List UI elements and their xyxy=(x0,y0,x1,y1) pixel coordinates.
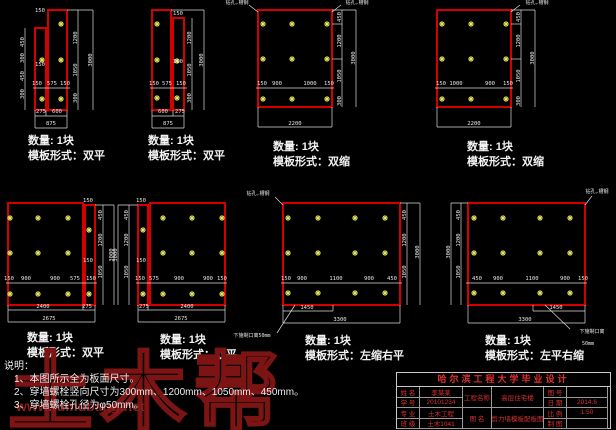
tb-value-drafter xyxy=(567,419,608,430)
bolt-icon xyxy=(315,290,321,296)
bolt-icon xyxy=(503,56,509,62)
dim-text: 450 xyxy=(516,12,522,22)
tb-value-major: 土木工程 xyxy=(420,408,463,419)
bolt-icon xyxy=(285,290,291,296)
panel-form-label: 模板形式：双缩 xyxy=(273,154,350,168)
bolt-icon xyxy=(285,250,291,256)
dim-text: 1200 xyxy=(124,233,130,246)
panel-qty-label: 数量: 1块 xyxy=(160,332,207,346)
dim-text: 钻孔,槽钢 xyxy=(585,188,608,195)
dim-text: 钻孔,槽钢 xyxy=(225,0,248,6)
dim-text: 1050 xyxy=(456,265,462,278)
dim-text: 450 xyxy=(402,210,408,220)
tb-value-class: 土木1041 xyxy=(420,419,463,430)
dim-text: 275 xyxy=(175,109,185,115)
dim-text: 450 xyxy=(124,210,130,220)
bolt-icon xyxy=(174,95,180,101)
dim-text: 300 xyxy=(20,89,26,99)
dim-text: 900 xyxy=(272,81,282,87)
dim-text: 900 xyxy=(174,276,184,282)
bolt-icon xyxy=(324,56,330,62)
bolt-icon xyxy=(65,215,71,221)
dim-text: 300 xyxy=(187,93,193,103)
dim-text: 150 xyxy=(257,81,267,87)
bolt-icon xyxy=(324,21,330,27)
dim-text: 3300 xyxy=(333,317,346,323)
bolt-icon xyxy=(35,215,41,221)
dim-text: 900 xyxy=(485,81,495,87)
dim-text: 2200 xyxy=(467,121,480,127)
dim-text: 1050 xyxy=(124,265,130,278)
bolt-icon xyxy=(503,21,509,27)
dim-text: 900 xyxy=(50,276,60,282)
panel-outline xyxy=(85,205,95,305)
dim-text: 钻孔,槽钢 xyxy=(525,0,548,6)
dim-text: 600 xyxy=(52,109,62,115)
title-block: 哈尔滨工程大学毕业设计 姓 名 李某某 工程名称 高层住宅楼 图 号 学 号 2… xyxy=(396,372,611,429)
panel-qty-label: 数量: 1块 xyxy=(27,330,74,344)
tb-label-scale: 比 例 xyxy=(544,408,567,419)
panel-qty-label: 数量: 1块 xyxy=(28,133,75,147)
dim-text: 3000 xyxy=(351,51,357,64)
dim-text: 1200 xyxy=(337,34,343,47)
bolt-icon xyxy=(468,21,474,27)
dim-text: 2200 xyxy=(288,121,301,127)
bolt-icon xyxy=(65,250,71,256)
tb-label-date: 日 期 xyxy=(544,398,567,409)
dim-text: 1200 xyxy=(187,31,193,44)
dim-text: 1200 xyxy=(98,233,104,246)
bolt-icon xyxy=(537,290,543,296)
dim-text: 875 xyxy=(46,121,56,127)
bolt-icon xyxy=(160,250,166,256)
dim-text: 1000 xyxy=(449,81,462,87)
dim-text: 150 xyxy=(578,276,588,282)
dim-text: 900 xyxy=(364,276,374,282)
dim-text: 1200 xyxy=(456,233,462,246)
panel-form-label: 模板形式：双缩 xyxy=(467,154,544,168)
bolt-icon xyxy=(289,56,295,62)
dim-text: 50mm xyxy=(582,341,594,347)
titleblock-grid: 姓 名 李某某 工程名称 高层住宅楼 图 号 学 号 20101234 日 期 … xyxy=(397,387,610,429)
bolt-icon xyxy=(289,96,295,102)
dim-line xyxy=(511,5,520,12)
dim-text: 1450 xyxy=(549,305,562,311)
tb-label-class: 班 级 xyxy=(397,419,420,430)
bolt-icon xyxy=(382,215,388,221)
bolt-icon xyxy=(39,96,45,102)
bolt-icon xyxy=(160,291,166,297)
dim-text: 275 xyxy=(82,304,92,310)
dim-text: 1000 xyxy=(303,81,316,87)
tb-value-scale: 1:50 xyxy=(567,408,608,419)
bolt-icon xyxy=(58,21,64,27)
tb-value-drawingname: 剪力墙模板配板图 xyxy=(492,408,544,429)
dim-text: 300 xyxy=(337,96,343,106)
dim-text: 900 xyxy=(560,276,570,282)
panel-form-label: 模板形式：左缩右平 xyxy=(305,348,404,362)
bolt-icon xyxy=(65,291,71,297)
dim-text: 3000 xyxy=(530,51,536,64)
dim-text: 875 xyxy=(163,121,173,127)
dim-text: 150 xyxy=(436,81,446,87)
dim-text: 900 xyxy=(493,276,503,282)
dim-line xyxy=(249,5,258,12)
dim-text: 150 xyxy=(32,81,42,87)
bolt-icon xyxy=(352,290,358,296)
dim-text: 钻孔,槽钢 xyxy=(345,0,368,6)
dim-text: 2675 xyxy=(174,316,187,322)
dim-text: 450 xyxy=(387,276,397,282)
bolt-icon xyxy=(189,291,195,297)
bolt-icon xyxy=(285,215,291,221)
tb-label-project: 工程名称 xyxy=(463,387,492,408)
tb-value-date: 2014.6 xyxy=(567,398,608,409)
tb-value-project: 高层住宅楼 xyxy=(492,387,544,408)
bolt-icon xyxy=(289,21,295,27)
dim-text: 1200 xyxy=(402,233,408,246)
dim-text: 150 xyxy=(35,8,45,14)
dim-text: 1050 xyxy=(402,265,408,278)
bolt-icon xyxy=(352,250,358,256)
dim-text: 150 xyxy=(136,258,146,264)
dim-text: 450 xyxy=(20,71,26,81)
bolt-icon xyxy=(58,57,64,63)
dim-line xyxy=(585,196,592,205)
bolt-icon xyxy=(260,56,266,62)
bolt-icon xyxy=(468,56,474,62)
dim-text: 450 xyxy=(98,210,104,220)
bolt-icon xyxy=(382,290,388,296)
bolt-icon xyxy=(86,227,92,233)
tb-label-drawingname: 图 名 xyxy=(463,408,492,429)
bolt-icon xyxy=(160,215,166,221)
bolt-icon xyxy=(189,215,195,221)
panel-outline xyxy=(8,203,83,305)
bolt-icon xyxy=(86,291,92,297)
bolt-icon xyxy=(537,215,543,221)
bolt-icon xyxy=(189,250,195,256)
dim-text: 3000 xyxy=(446,245,452,258)
dim-text: 1450 xyxy=(300,305,313,311)
bolt-icon xyxy=(324,96,330,102)
bolt-icon xyxy=(315,250,321,256)
bolt-icon xyxy=(500,290,506,296)
note-line: 3、穿墙螺栓孔径为φ50mm。 xyxy=(14,398,144,411)
dim-line xyxy=(275,197,283,205)
dim-text: 150 xyxy=(86,276,96,282)
dim-text: 300 xyxy=(20,53,26,63)
panel-qty-label: 数量: 1块 xyxy=(148,133,195,147)
bolt-icon xyxy=(35,250,41,256)
dim-text: 300 xyxy=(73,93,79,103)
panel-qty-label: 数量: 1块 xyxy=(467,139,514,153)
tb-value-name: 李某某 xyxy=(420,387,463,398)
dim-text: 575 xyxy=(47,81,57,87)
bolt-icon xyxy=(468,96,474,102)
bolt-icon xyxy=(154,57,160,63)
bolt-icon xyxy=(154,95,160,101)
dim-text: 1050 xyxy=(187,63,193,76)
dim-text: 150 xyxy=(83,198,93,204)
dim-text: 3300 xyxy=(518,317,531,323)
bolt-icon xyxy=(439,21,445,27)
dim-line xyxy=(332,5,341,12)
panel-outline xyxy=(138,205,148,305)
dim-text: 150 xyxy=(176,81,186,87)
dim-text: 2400 xyxy=(36,304,49,310)
panel-qty-label: 数量: 1块 xyxy=(485,333,532,347)
dim-text: 150 xyxy=(4,276,14,282)
dim-text: 1100 xyxy=(525,276,538,282)
bolt-icon xyxy=(471,250,477,256)
bolt-icon xyxy=(140,291,146,297)
tb-label-studentid: 学 号 xyxy=(397,398,420,409)
panel-form-label: 模板形式：左平右缩 xyxy=(485,348,584,362)
dim-text: 3000 xyxy=(88,53,94,66)
dim-text: 1050 xyxy=(337,69,343,82)
bolt-icon xyxy=(567,290,573,296)
titleblock-header: 哈尔滨工程大学毕业设计 xyxy=(397,373,610,387)
dim-text: 钻孔,槽钢 xyxy=(246,190,269,197)
bolt-icon xyxy=(567,250,573,256)
dim-text: 450 xyxy=(472,276,482,282)
dim-text: 575 xyxy=(149,276,159,282)
dim-text: 150 xyxy=(173,11,183,17)
dim-text: 1050 xyxy=(516,69,522,82)
dim-text: 150 xyxy=(136,198,146,204)
dim-text: 275 xyxy=(139,304,149,310)
bolt-icon xyxy=(35,291,41,297)
dim-text: 下施制口离 xyxy=(579,328,604,335)
dim-text: 450 xyxy=(456,210,462,220)
dim-text: 150 xyxy=(324,81,334,87)
dim-text: 2675 xyxy=(42,316,55,322)
dim-text: 150 xyxy=(60,81,70,87)
dim-text: 1200 xyxy=(516,34,522,47)
dim-text: 150 xyxy=(135,276,145,282)
dim-text: 150 xyxy=(217,276,227,282)
bolt-icon xyxy=(154,21,160,27)
tb-label-drafter: 制 图 xyxy=(544,419,567,430)
bolt-icon xyxy=(471,215,477,221)
bolt-icon xyxy=(352,215,358,221)
dim-text: 3000 xyxy=(415,245,421,258)
tb-label-name: 姓 名 xyxy=(397,387,420,398)
dim-text: 575 xyxy=(70,276,80,282)
bolt-icon xyxy=(260,96,266,102)
panel-outline xyxy=(48,10,67,110)
dim-text: 900 xyxy=(297,276,307,282)
bolt-icon xyxy=(567,215,573,221)
dim-text: 450 xyxy=(337,12,343,22)
dim-text: 575 xyxy=(162,81,172,87)
dim-text: 150 xyxy=(83,258,93,264)
dim-text: 150 xyxy=(503,81,513,87)
panel-qty-label: 数量: 1块 xyxy=(273,139,320,153)
tb-value-sheetno xyxy=(567,387,608,398)
bolt-icon xyxy=(315,215,321,221)
cad-canvas: 1501504503004503001505751502756008751200… xyxy=(0,0,616,430)
dim-text: 900 xyxy=(203,276,213,282)
bolt-icon xyxy=(471,290,477,296)
panel-qty-label: 数量: 1块 xyxy=(305,333,352,347)
dim-text: 2400 xyxy=(180,304,193,310)
bolt-icon xyxy=(58,96,64,102)
panel-form-label: 模板形式：双平 xyxy=(28,148,105,162)
bolt-icon xyxy=(503,96,509,102)
dim-text: 900 xyxy=(21,276,31,282)
dim-text: 600 xyxy=(158,109,168,115)
dim-text: 1200 xyxy=(73,31,79,44)
tb-value-studentid: 20101234 xyxy=(420,398,463,409)
bolt-icon xyxy=(439,96,445,102)
tb-label-sheetno: 图 号 xyxy=(544,387,567,398)
bolt-icon xyxy=(439,56,445,62)
dim-text: 450 xyxy=(20,37,26,47)
dim-text: 275 xyxy=(36,109,46,115)
panel-form-label: 模板形式：双平 xyxy=(148,148,225,162)
bolt-icon xyxy=(537,250,543,256)
dim-text: 300 xyxy=(516,96,522,106)
note-line: 1、本图所示全为板面尺寸。 xyxy=(14,372,140,385)
dim-text: 1050 xyxy=(73,63,79,76)
bolt-icon xyxy=(382,250,388,256)
dim-text: 150 xyxy=(149,81,159,87)
dim-text: 150 xyxy=(35,62,45,68)
tb-label-major: 专 业 xyxy=(397,408,420,419)
bolt-icon xyxy=(500,250,506,256)
notes-title: 说明： xyxy=(4,359,34,372)
dim-text: 下施制口离50mm xyxy=(233,332,270,339)
dim-text: 1100 xyxy=(329,276,342,282)
dim-line xyxy=(277,305,295,333)
bolt-icon xyxy=(260,21,266,27)
dim-text: 3000 xyxy=(199,53,205,66)
dim-text: 3000 xyxy=(113,248,119,261)
bolt-icon xyxy=(500,215,506,221)
dim-text: 150 xyxy=(173,59,183,65)
bolt-icon xyxy=(140,227,146,233)
formwork-drawing: 1501504503004503001505751502756008751200… xyxy=(0,0,616,430)
note-line: 2、穿墙螺栓竖向尺寸为300mm、1200mm、1050mm、450mm。 xyxy=(14,385,304,398)
dim-text: 1050 xyxy=(98,265,104,278)
dim-text: 150 xyxy=(281,276,291,282)
